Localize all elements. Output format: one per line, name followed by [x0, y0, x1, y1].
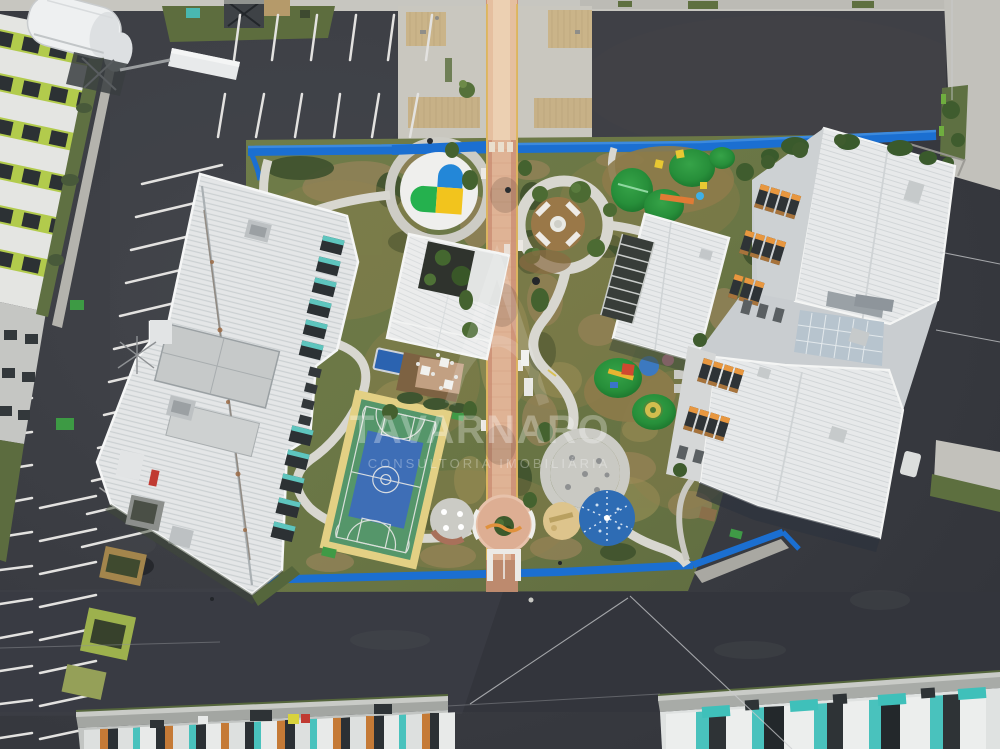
svg-text:CONSULTORIA IMOBILIÁRIA: CONSULTORIA IMOBILIÁRIA [368, 456, 611, 471]
svg-text:TAVARNARO: TAVARNARO [350, 408, 610, 452]
